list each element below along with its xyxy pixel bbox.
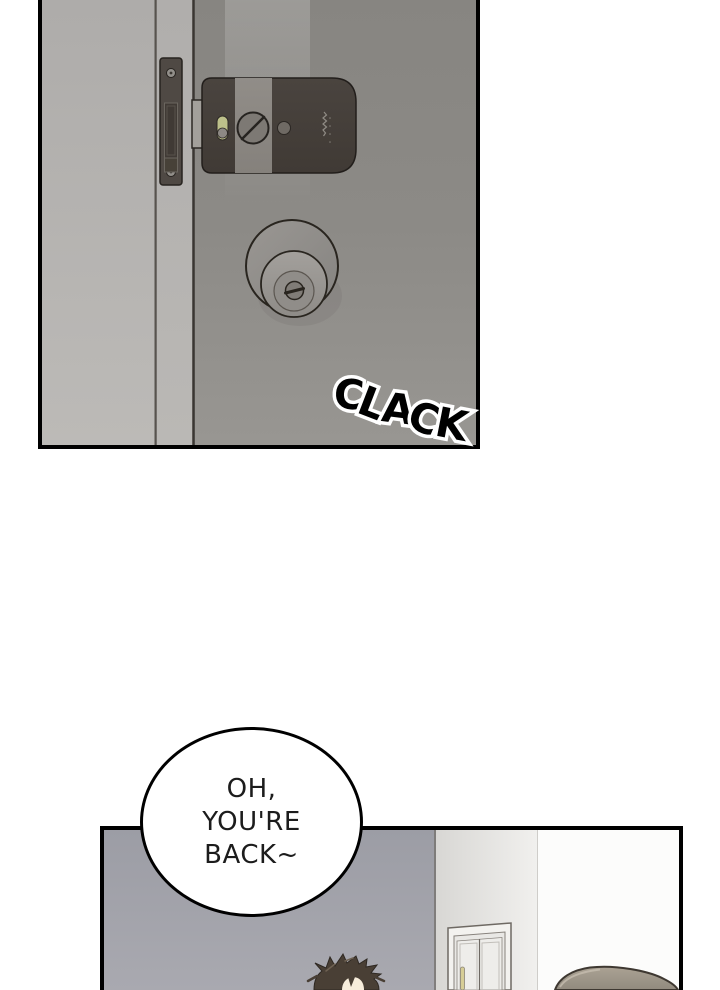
comic-page: C L A C K	[0, 0, 720, 990]
thumbturn-icon	[238, 113, 269, 144]
lock-indicator-icon	[217, 116, 228, 140]
inner-door	[448, 923, 511, 990]
lock-button-icon	[278, 122, 291, 135]
door-lock-illustration	[42, 0, 476, 445]
deadbolt-lock	[202, 78, 356, 173]
speech-text-line: OH,	[227, 773, 277, 806]
keyhole-icon	[286, 282, 304, 300]
speech-bubble: OH, YOU'RE BACK~	[140, 727, 363, 917]
door-frame	[42, 0, 155, 445]
strike-plate	[160, 58, 182, 185]
inner-door-handle	[461, 967, 465, 990]
speech-text-line: BACK~	[204, 839, 299, 872]
speech-text-line: YOU'RE	[202, 806, 301, 839]
panel-door-lock-closeup	[38, 0, 480, 449]
strike-slot	[165, 103, 178, 158]
